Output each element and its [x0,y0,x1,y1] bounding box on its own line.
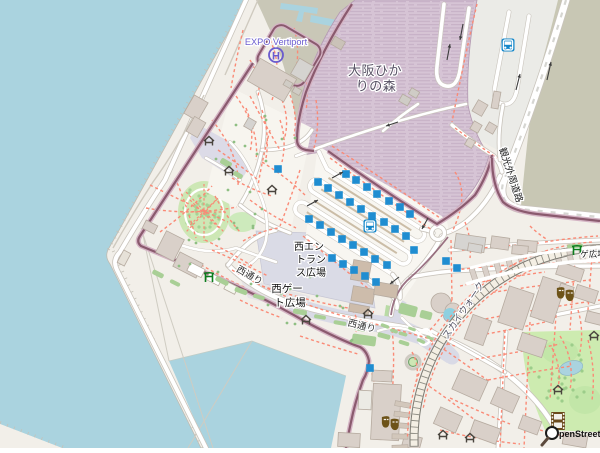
svg-text:EXPO Vertiport: EXPO Vertiport [245,37,308,47]
svg-text:大阪ひか: 大阪ひか [348,63,402,78]
svg-text:西ゲー: 西ゲー [271,283,303,295]
svg-text:西エン: 西エン [294,242,324,253]
svg-text:りの森: りの森 [356,79,397,94]
svg-text:トラン: トラン [296,254,326,266]
svg-text:ト広場: ト広場 [274,296,306,309]
svg-text:H: H [272,51,280,63]
svg-text:ゲ広場: ゲ広場 [580,249,600,259]
svg-text:penStreetMap: penStreetMap [559,429,600,439]
svg-text:ス広場: ス広場 [296,266,326,279]
